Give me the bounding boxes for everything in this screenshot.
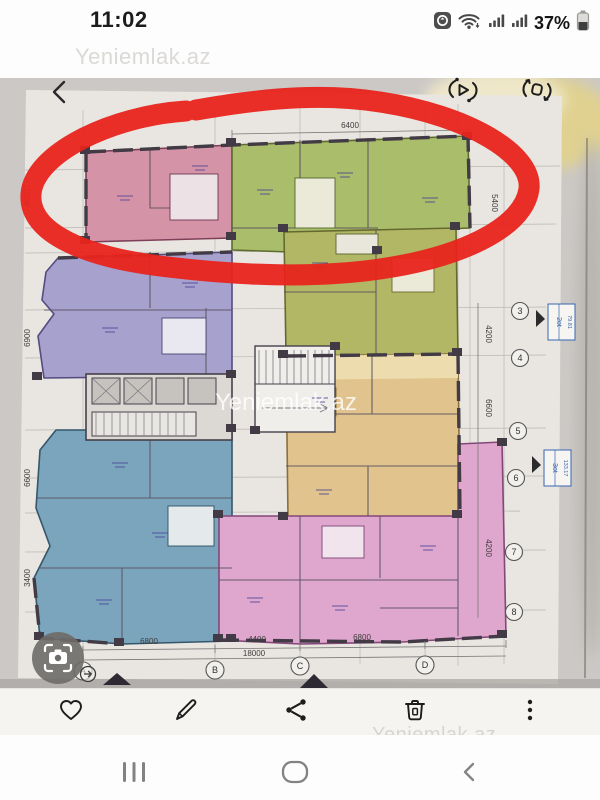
- dim-left-4: 3400: [23, 569, 32, 587]
- svg-text:2ot: 2ot: [555, 317, 562, 327]
- dim-bottom-3: 6800: [353, 633, 371, 642]
- core-elevators: [86, 374, 232, 440]
- clock: 11:02: [90, 7, 148, 33]
- nav-back-button[interactable]: [458, 760, 482, 789]
- dim-bottom-total: 18000: [243, 649, 266, 658]
- action-toolbar: [0, 688, 600, 736]
- svg-text:D: D: [422, 660, 429, 670]
- nav-back-icon: [458, 760, 482, 784]
- dim-right-1: 4200: [484, 325, 493, 343]
- axis-letter-D: D: [416, 656, 434, 674]
- room-hall-green: [336, 234, 378, 254]
- battery-percent: 37%: [534, 13, 570, 34]
- axis-number-6: 6: [508, 470, 525, 487]
- room-bath-green: [295, 178, 335, 228]
- heart-icon: [57, 696, 85, 724]
- svg-text:6: 6: [513, 473, 518, 483]
- dim-right-top: 5400: [490, 194, 499, 212]
- svg-text:8: 8: [511, 607, 516, 617]
- rotate-icon: [520, 74, 554, 106]
- svg-text:79.81: 79.81: [566, 315, 572, 329]
- scan-button[interactable]: [32, 632, 84, 684]
- pencil-icon: [172, 696, 200, 724]
- axis-number-5: 5: [510, 423, 527, 440]
- room-bath-magenta: [322, 526, 364, 558]
- trash-icon: [401, 696, 429, 724]
- room-bath-purple: [162, 318, 206, 354]
- svg-text:133.17: 133.17: [562, 460, 568, 477]
- axis-letter-B: B: [206, 661, 224, 679]
- axis-number-8: 8: [506, 604, 523, 621]
- dim-right-2: 6600: [484, 399, 493, 417]
- cellular-signal-1-icon: [488, 13, 505, 33]
- android-nav-bar: [0, 735, 600, 800]
- favorite-button[interactable]: [57, 696, 85, 724]
- dim-right-3: 4200: [484, 539, 493, 557]
- status-icons: 37%: [433, 10, 590, 36]
- svg-text:5: 5: [515, 426, 520, 436]
- axis-number-3: 3: [512, 303, 529, 320]
- more-button[interactable]: [516, 696, 544, 724]
- svg-text:7: 7: [511, 547, 516, 557]
- battery-icon: [576, 10, 590, 36]
- more-vertical-icon: [516, 696, 544, 724]
- dim-top: 6400: [341, 121, 359, 130]
- status-bar: 11:02 37%: [0, 0, 600, 42]
- dim-bottom-2: 4400: [248, 635, 266, 644]
- axis-number-4: 4: [512, 350, 529, 367]
- screen: 11:02 37% Yeniemlak.az: [0, 0, 600, 800]
- share-button[interactable]: [283, 696, 311, 724]
- watermark-top: Yeniemlak.az: [75, 44, 211, 70]
- svg-text:3ot: 3ot: [551, 463, 558, 473]
- svg-text:B: B: [212, 665, 218, 675]
- photo-floor-plan[interactable]: 6400 5400 6800 4400 6800 18000 4200 6600…: [0, 78, 600, 688]
- back-button[interactable]: [46, 78, 74, 106]
- recents-icon: [119, 760, 149, 784]
- svg-text:C: C: [297, 661, 304, 671]
- cellular-signal-2-icon: [511, 13, 528, 33]
- home-button[interactable]: [280, 760, 310, 789]
- edit-button[interactable]: [172, 696, 200, 724]
- room-bath-blue: [168, 506, 214, 546]
- watermark-center: Yeniemlak.az: [215, 389, 357, 416]
- axis-number-7: 7: [506, 544, 523, 561]
- screen-capture-icon: [433, 11, 452, 35]
- dim-left-2: 6900: [23, 329, 32, 347]
- back-chevron-icon: [46, 78, 74, 106]
- recents-button[interactable]: [119, 760, 149, 789]
- room-bath-pink: [170, 174, 218, 220]
- rotate-button[interactable]: [520, 74, 554, 106]
- dim-left-3: 6600: [23, 469, 32, 487]
- small-arrow-badge: [81, 667, 96, 682]
- svg-text:4: 4: [517, 353, 522, 363]
- motion-photo-button[interactable]: [446, 74, 480, 106]
- share-icon: [283, 696, 311, 724]
- dim-bottom-1: 6800: [140, 637, 158, 646]
- wifi-icon: [458, 12, 482, 35]
- motion-photo-icon: [446, 74, 480, 106]
- axis-letter-C: C: [291, 657, 309, 675]
- delete-button[interactable]: [401, 696, 429, 724]
- home-icon: [280, 760, 310, 784]
- svg-text:3: 3: [517, 306, 522, 316]
